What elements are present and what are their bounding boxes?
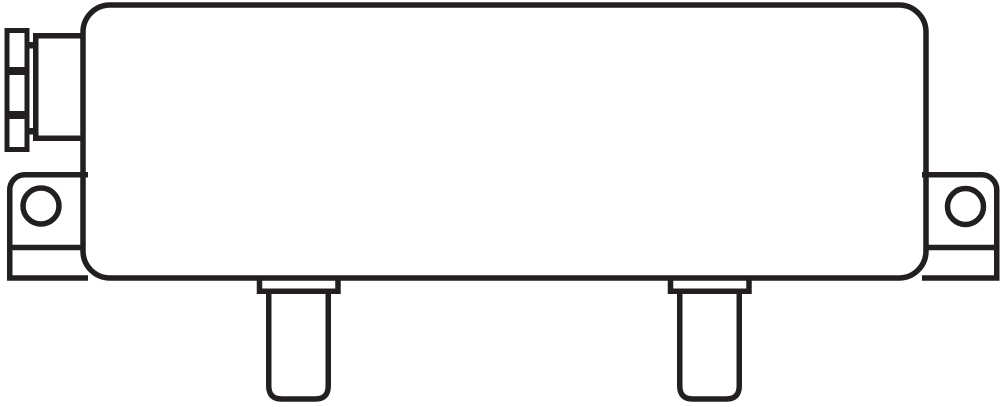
connector-flange bbox=[7, 31, 27, 150]
leg-left-shaft bbox=[269, 289, 329, 399]
flange-divider-top bbox=[9, 67, 25, 75]
leg-right bbox=[671, 276, 750, 399]
enclosure-body bbox=[83, 5, 926, 278]
leg-right-shaft bbox=[680, 289, 740, 399]
panel-connector bbox=[7, 31, 86, 150]
mounting-tab-left bbox=[10, 175, 88, 278]
leg-left bbox=[260, 276, 339, 399]
drawing-canvas bbox=[0, 0, 1000, 407]
part-drawing bbox=[0, 0, 1000, 407]
connector-housing bbox=[36, 36, 86, 139]
mounting-hole-right bbox=[948, 189, 984, 225]
mounting-hole-left bbox=[23, 188, 59, 224]
flange-divider-bottom bbox=[9, 111, 25, 119]
mounting-tab-right bbox=[922, 175, 997, 278]
